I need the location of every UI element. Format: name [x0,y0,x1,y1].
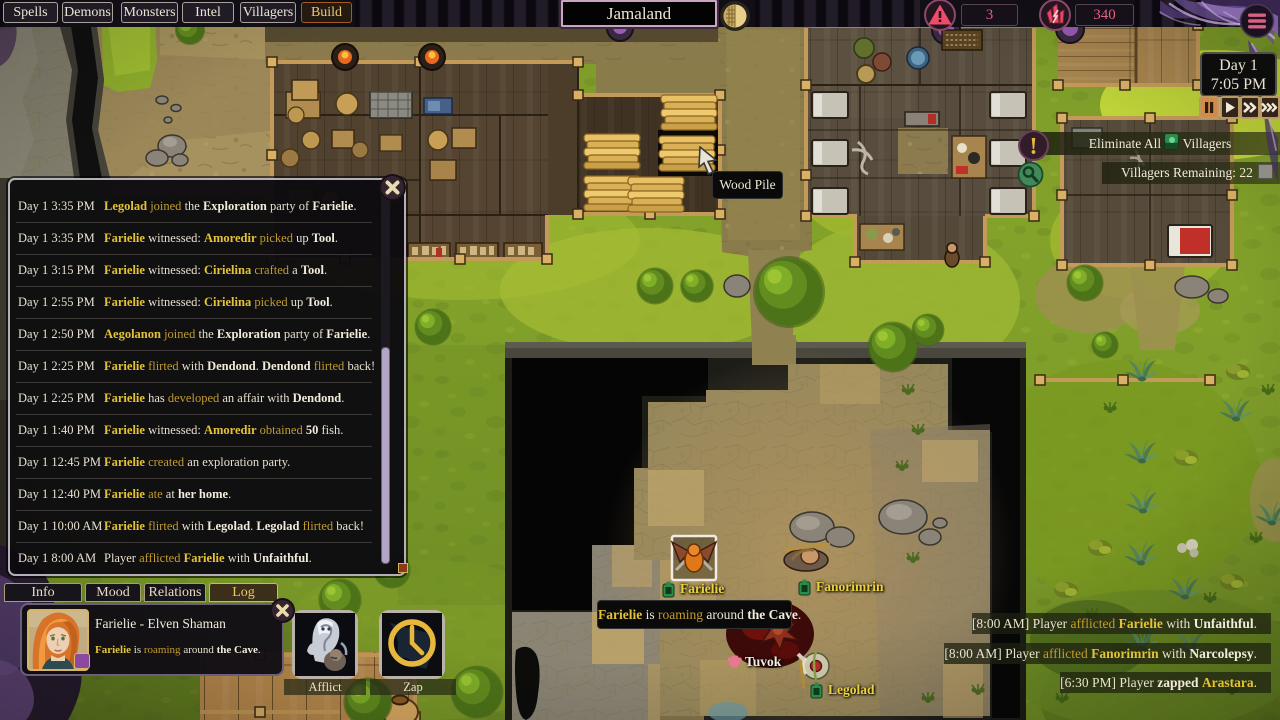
svg-text:!: ! [1030,134,1038,160]
